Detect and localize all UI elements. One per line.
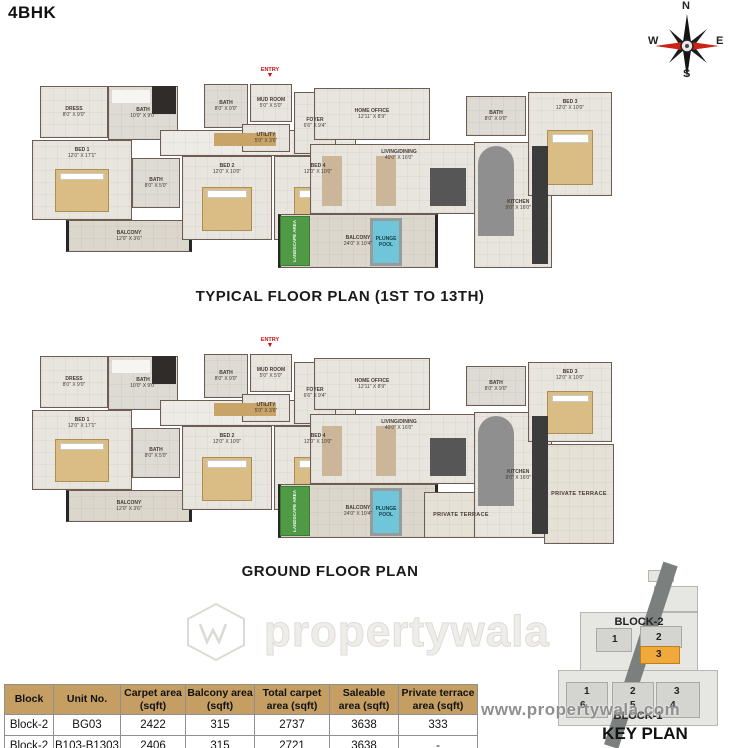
room-label: BED 212'0" X 10'0"	[213, 163, 241, 176]
room-label: UTILITY5'0" X 3'6"	[255, 402, 278, 415]
room-dress: DRESS8'0" X 9'0"	[40, 86, 108, 138]
table-header: Private terrace area (sqft)	[399, 685, 478, 715]
room-label: BED 412'0" X 10'0"	[304, 163, 332, 176]
table-cell: -	[399, 736, 478, 748]
unit-number: 3	[674, 686, 680, 697]
area-table: BlockUnit No.Carpet area (sqft)Balcony a…	[4, 684, 478, 748]
room-label: BATH8'0" X 9'0"	[485, 380, 508, 393]
table-cell: 315	[186, 715, 255, 736]
bed-icon	[547, 391, 593, 434]
room-bath: BATH8'0" X 5'0"	[132, 428, 180, 478]
room-label: LIVING/DINING40'0" X 16'0"	[381, 149, 417, 162]
table-row: Block-2BG03242231527373638333	[5, 715, 478, 736]
room-label: BALCONY24'0" X 10'4"	[344, 505, 372, 518]
floor-plan-typical: ENTRY▼DRESS8'0" X 9'0"BATH10'0" X 9'0"BE…	[18, 82, 622, 274]
table-header: Carpet area (sqft)	[121, 685, 186, 715]
room-bath: BATH8'0" X 9'0"	[466, 366, 526, 406]
room-landscape-area: LANDSCAPE AREA	[280, 486, 310, 536]
furniture-shape	[430, 438, 466, 476]
table-cell: 2422	[121, 715, 186, 736]
room-bed-1: BED 112'0" X 17'1"	[32, 140, 132, 220]
table-header: Balcony area (sqft)	[186, 685, 255, 715]
entry-marker: ENTRY▼	[246, 67, 294, 78]
room-label: BATH8'0" X 5'0"	[145, 447, 168, 460]
room-home-office: HOME OFFICE12'11" X 8'9"	[314, 88, 430, 140]
room-label: PRIVATE TERRACE	[551, 491, 607, 498]
compass-north-label: N	[682, 0, 690, 12]
room-bath: BATH8'0" X 9'0"	[204, 84, 248, 128]
room-plunge-pool: PLUNGE POOL	[370, 218, 402, 266]
room-label: PRIVATE TERRACE	[433, 512, 489, 519]
table-cell: 3638	[330, 715, 399, 736]
room-label: HOME OFFICE12'11" X 8'9"	[355, 378, 390, 391]
entry-pin-icon: ▼	[246, 73, 294, 78]
room-label: PLUNGE POOL	[373, 236, 399, 249]
bed-icon	[55, 169, 110, 212]
room-label: BALCONY24'0" X 10'4"	[344, 235, 372, 248]
room-label: PLUNGE POOL	[373, 506, 399, 519]
bed-icon	[202, 187, 252, 232]
room-label: BATH10'0" X 9'0"	[130, 107, 155, 120]
room-label: LIVING/DINING40'0" X 16'0"	[381, 419, 417, 432]
watermark-brand-text: propertywala	[264, 607, 550, 657]
table-cell: BG03	[54, 715, 121, 736]
table-cell: 3638	[330, 736, 399, 748]
block-2-label: BLOCK-2	[580, 616, 698, 628]
room-label: BED 312'0" X 10'0"	[556, 99, 584, 112]
room-balcony: BALCONY12'0" X 3'6"	[66, 490, 192, 522]
table-cell: 2406	[121, 736, 186, 748]
unit-number: 2	[656, 632, 662, 643]
room-label: BATH8'0" X 9'0"	[485, 110, 508, 123]
furniture-shape	[112, 90, 150, 103]
room-bath: BATH8'0" X 9'0"	[466, 96, 526, 136]
room-label: BATH8'0" X 5'0"	[145, 177, 168, 190]
entry-pin-icon: ▼	[246, 343, 294, 348]
room-label: LANDSCAPE AREA	[292, 220, 298, 262]
unit-number: 2	[630, 686, 636, 697]
room-mud-room: MUD ROOM5'0" X 5'0"	[250, 354, 292, 392]
furniture-shape	[376, 156, 396, 206]
room-label: BED 112'0" X 17'1"	[68, 147, 96, 160]
entry-marker: ENTRY▼	[246, 337, 294, 348]
table-header: Unit No.	[54, 685, 121, 715]
furniture-shape	[430, 168, 466, 206]
room-mud-room: MUD ROOM5'0" X 5'0"	[250, 84, 292, 122]
bed-icon	[547, 130, 593, 185]
room-home-office: HOME OFFICE12'11" X 8'9"	[314, 358, 430, 410]
compass-east-label: E	[716, 35, 723, 47]
room-bed-2: BED 212'0" X 10'0"	[182, 156, 272, 240]
room-bath: BATH8'0" X 5'0"	[132, 158, 180, 208]
room-label: DRESS8'0" X 9'0"	[63, 106, 86, 119]
room-private-terrace: PRIVATE TERRACE	[544, 444, 614, 544]
floor-plan-ground: ENTRY▼DRESS8'0" X 9'0"BATH10'0" X 9'0"BE…	[18, 352, 622, 552]
room-label: DRESS8'0" X 9'0"	[63, 376, 86, 389]
table-header: Total carpet area (sqft)	[255, 685, 330, 715]
room-label: MUD ROOM5'0" X 5'0"	[257, 97, 285, 110]
room-plunge-pool: PLUNGE POOL	[370, 488, 402, 536]
room-label: BED 312'0" X 10'0"	[556, 369, 584, 382]
unit-number: 3	[656, 649, 662, 660]
table-header-row: BlockUnit No.Carpet area (sqft)Balcony a…	[5, 685, 478, 715]
propertywala-logo-icon	[184, 602, 248, 662]
compass-south-label: S	[683, 68, 690, 80]
room-label: BED 112'0" X 17'1"	[68, 417, 96, 430]
room-label: BALCONY12'0" X 3'6"	[116, 230, 141, 243]
page-title: 4BHK	[8, 3, 56, 23]
watermark-url-text: www.propertywala.com	[481, 700, 680, 720]
watermark: propertywala	[184, 602, 550, 662]
room-label: MUD ROOM5'0" X 5'0"	[257, 367, 285, 380]
room-label: BED 212'0" X 10'0"	[213, 433, 241, 446]
room-bed-2: BED 212'0" X 10'0"	[182, 426, 272, 510]
room-bed-1: BED 112'0" X 17'1"	[32, 410, 132, 490]
unit-number: 1	[584, 686, 590, 697]
table-cell: 2737	[255, 715, 330, 736]
unit-number: 1	[612, 634, 618, 645]
table-cell: Block-2	[5, 715, 54, 736]
room-label: BED 412'0" X 10'0"	[304, 433, 332, 446]
key-plan-caption: KEY PLAN	[556, 724, 734, 744]
room-label: BATH8'0" X 9'0"	[215, 370, 238, 383]
bed-icon	[55, 439, 110, 482]
furniture-shape	[478, 146, 514, 236]
room-label: LANDSCAPE AREA	[292, 490, 298, 532]
furniture-shape	[112, 360, 150, 373]
room-label: UTILITY5'0" X 3'6"	[255, 132, 278, 145]
table-header: Block	[5, 685, 54, 715]
table-cell: 333	[399, 715, 478, 736]
table-row: Block-2B103-B1303240631527213638-	[5, 736, 478, 748]
bed-icon	[202, 457, 252, 502]
room-dress: DRESS8'0" X 9'0"	[40, 356, 108, 408]
room-bath: BATH8'0" X 9'0"	[204, 354, 248, 398]
room-label: HOME OFFICE12'11" X 8'9"	[355, 108, 390, 121]
compass-west-label: W	[648, 35, 658, 47]
room-label: BATH8'0" X 9'0"	[215, 100, 238, 113]
floor-plan-sheet: 4BHK N E S W ENTRY▼DRESS8'0" X 9'0"BATH1…	[0, 0, 734, 748]
table-header: Saleable area (sqft)	[330, 685, 399, 715]
room-balcony: BALCONY12'0" X 3'6"	[66, 220, 192, 252]
room-label: BATH10'0" X 9'0"	[130, 377, 155, 390]
table-cell: B103-B1303	[54, 736, 121, 748]
furniture-shape	[376, 426, 396, 476]
compass-rose-icon: N E S W	[650, 2, 724, 84]
furniture-shape	[532, 146, 548, 264]
table-cell: Block-2	[5, 736, 54, 748]
room-label: KITCHEN9'0" X 16'0"	[506, 199, 531, 212]
room-label: FOYER6'6" X 9'4"	[304, 387, 327, 400]
room-label: FOYER6'6" X 9'4"	[304, 117, 327, 130]
table-cell: 315	[186, 736, 255, 748]
room-landscape-area: LANDSCAPE AREA	[280, 216, 310, 266]
room-label: BALCONY12'0" X 3'6"	[116, 500, 141, 513]
table-cell: 2721	[255, 736, 330, 748]
furniture-shape	[478, 416, 514, 506]
furniture-shape	[532, 416, 548, 534]
room-label: KITCHEN9'0" X 16'0"	[506, 469, 531, 482]
typical-plan-caption: TYPICAL FLOOR PLAN (1ST TO 13TH)	[0, 288, 680, 305]
